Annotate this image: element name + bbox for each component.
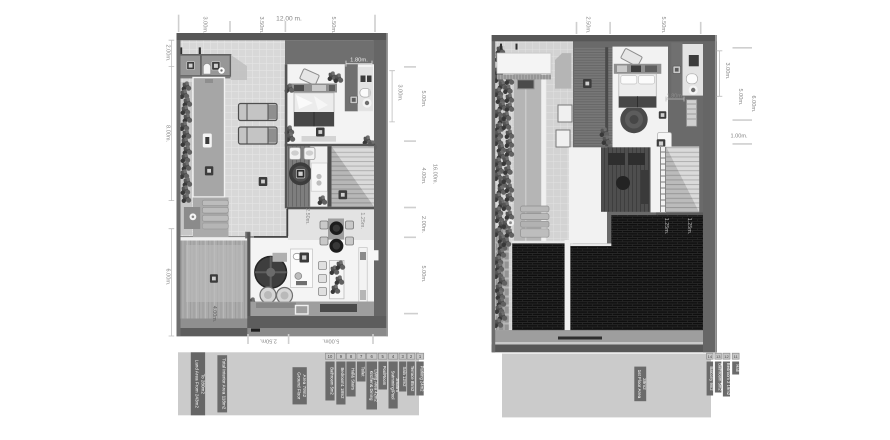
svg-text:12.00 m.: 12.00 m. bbox=[276, 16, 302, 23]
svg-text:12: 12 bbox=[724, 354, 729, 359]
svg-text:5.50m.: 5.50m. bbox=[330, 16, 336, 34]
svg-text:4.00m.: 4.00m. bbox=[420, 167, 426, 185]
svg-text:3.00m.: 3.00m. bbox=[397, 84, 403, 102]
svg-text:1.00m.: 1.00m. bbox=[730, 134, 748, 140]
svg-text:39m2: 39m2 bbox=[642, 378, 647, 390]
svg-text:3.00m.: 3.00m. bbox=[724, 62, 730, 80]
svg-text:Bathroom 5m2: Bathroom 5m2 bbox=[718, 363, 723, 391]
svg-text:Bathroom 5m2: Bathroom 5m2 bbox=[329, 367, 334, 395]
svg-text:2.50m.: 2.50m. bbox=[259, 338, 277, 344]
svg-text:1.80m.: 1.80m. bbox=[667, 94, 683, 100]
svg-text:1st Floor Area: 1st Floor Area bbox=[637, 370, 642, 399]
svg-text:Sala 12m2: Sala 12m2 bbox=[402, 366, 407, 387]
svg-text:Parking 24m2: Parking 24m2 bbox=[419, 366, 424, 393]
svg-text:Terrace 85m2: Terrace 85m2 bbox=[410, 366, 415, 392]
svg-text:13: 13 bbox=[716, 354, 721, 359]
svg-text:Kitchen& Dining: Kitchen& Dining bbox=[369, 371, 374, 401]
svg-text:1.25m.: 1.25m. bbox=[686, 218, 692, 234]
svg-text:10: 10 bbox=[328, 354, 333, 359]
svg-text:5.00m.: 5.00m. bbox=[420, 265, 426, 283]
svg-text:16.00m.: 16.00m. bbox=[432, 164, 438, 185]
svg-text:Area 79m2: Area 79m2 bbox=[302, 375, 307, 398]
svg-text:5.00m.: 5.00m. bbox=[322, 338, 340, 344]
svg-text:2.00m.: 2.00m. bbox=[165, 44, 171, 62]
svg-text:6.00m.: 6.00m. bbox=[165, 268, 171, 286]
svg-text:Toilet: Toilet bbox=[361, 367, 366, 378]
svg-text:Swimming/Pool: Swimming/Pool bbox=[391, 371, 396, 400]
svg-text:Bedroom 2 19m2: Bedroom 2 19m2 bbox=[726, 363, 731, 396]
svg-text:Total Interior Area 118m2: Total Interior Area 118m2 bbox=[222, 358, 227, 409]
svg-text:14: 14 bbox=[708, 354, 713, 359]
svg-text:5.50m.: 5.50m. bbox=[660, 16, 666, 34]
svg-text:5.00m.: 5.00m. bbox=[420, 90, 426, 108]
svg-text:To 280m2: To 280m2 bbox=[200, 374, 205, 395]
svg-text:5.00m.: 5.00m. bbox=[737, 88, 743, 106]
svg-text:3.00m.: 3.00m. bbox=[202, 16, 208, 34]
svg-text:1.25m.: 1.25m. bbox=[663, 218, 669, 234]
svg-text:Bedroom1 18m2: Bedroom1 18m2 bbox=[340, 368, 345, 400]
svg-text:1.80m.: 1.80m. bbox=[350, 58, 368, 64]
svg-text:Hall: Hall bbox=[735, 364, 740, 371]
svg-text:6.00m.: 6.00m. bbox=[750, 95, 756, 113]
svg-text:1.25m.: 1.25m. bbox=[359, 212, 365, 228]
svg-text:Ground Floor: Ground Floor bbox=[296, 372, 301, 400]
svg-text:Hall& Stairs: Hall& Stairs bbox=[350, 368, 355, 390]
svg-text:3.50m.: 3.50m. bbox=[258, 16, 264, 34]
svg-text:Balcony 9m2: Balcony 9m2 bbox=[709, 366, 714, 391]
svg-text:2.50m.: 2.50m. bbox=[304, 208, 310, 224]
svg-text:4.00m.: 4.00m. bbox=[211, 306, 217, 322]
svg-text:2.50m.: 2.50m. bbox=[585, 16, 591, 34]
svg-text:2.00m.: 2.00m. bbox=[420, 216, 426, 234]
svg-text:Land Area From 243m2: Land Area From 243m2 bbox=[195, 360, 200, 409]
svg-text:PoolRoom: PoolRoom bbox=[382, 366, 387, 386]
svg-text:8.00m.: 8.00m. bbox=[165, 125, 171, 143]
svg-text:Living Area 42m2: Living Area 42m2 bbox=[374, 369, 379, 402]
